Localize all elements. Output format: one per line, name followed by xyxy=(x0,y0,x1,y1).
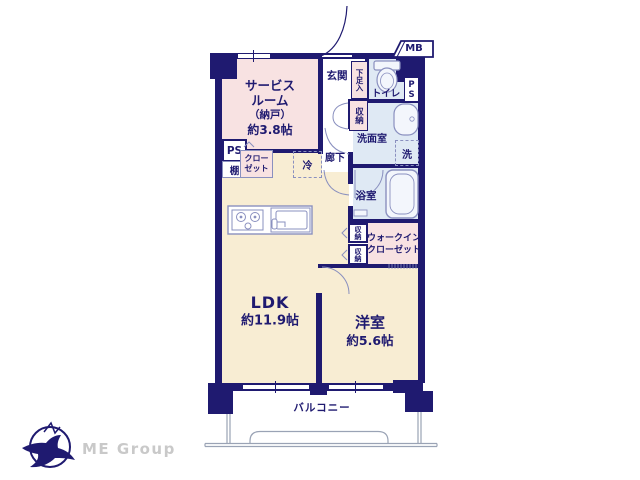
wic-label-2: クローゼット xyxy=(367,247,421,256)
bird-logo-icon xyxy=(22,423,75,467)
corridor-door-swing-icon xyxy=(324,170,349,195)
bath-step xyxy=(354,210,367,216)
washroom-label: 洗面室 xyxy=(357,135,387,145)
western-label-1: 洋室 xyxy=(355,316,385,331)
balcony-railing xyxy=(205,412,437,447)
service-room-label-3: （納戸） xyxy=(249,110,291,121)
logo-text: ME Group xyxy=(82,440,176,458)
western-door-swing-icon xyxy=(322,267,349,294)
bathroom-label: 浴室 xyxy=(356,191,377,202)
western-label-2: 約5.6帖 xyxy=(346,335,393,348)
genkan-label: 玄関 xyxy=(327,71,348,82)
service-room-label-2: ルーム xyxy=(251,95,288,108)
floor-plan: 下足入 収納 PS PS 棚 クロー ゼット 冷 洗 収納 収納 xyxy=(0,0,640,480)
service-room-label-4: 約3.8帖 xyxy=(247,124,292,136)
ldk-label-1: LDK xyxy=(251,295,290,311)
kitchen-counter xyxy=(228,206,312,234)
bathtub-icon xyxy=(386,170,418,218)
service-room-label-1: サービス xyxy=(245,80,295,93)
wic-hatch xyxy=(389,264,416,269)
storage-double-door-icon xyxy=(333,103,348,129)
kitchen-sink-icon xyxy=(271,208,310,232)
ldk-label-2: 約11.9帖 xyxy=(241,315,299,328)
wic-label-1: ウォークイン xyxy=(367,235,421,244)
entrance-door-swing-icon xyxy=(321,6,347,56)
closet-fold-mark-icon xyxy=(244,142,254,147)
balcony-label: バルコニー xyxy=(293,403,350,414)
washroom-door-swing-icon xyxy=(325,128,349,154)
toilet-label: トイレ xyxy=(372,89,401,99)
sink-icon xyxy=(394,104,418,135)
storage-fold-mark-icon xyxy=(342,228,347,260)
mb-label: MB xyxy=(405,44,423,54)
corridor-label: 廊下 xyxy=(323,153,347,165)
